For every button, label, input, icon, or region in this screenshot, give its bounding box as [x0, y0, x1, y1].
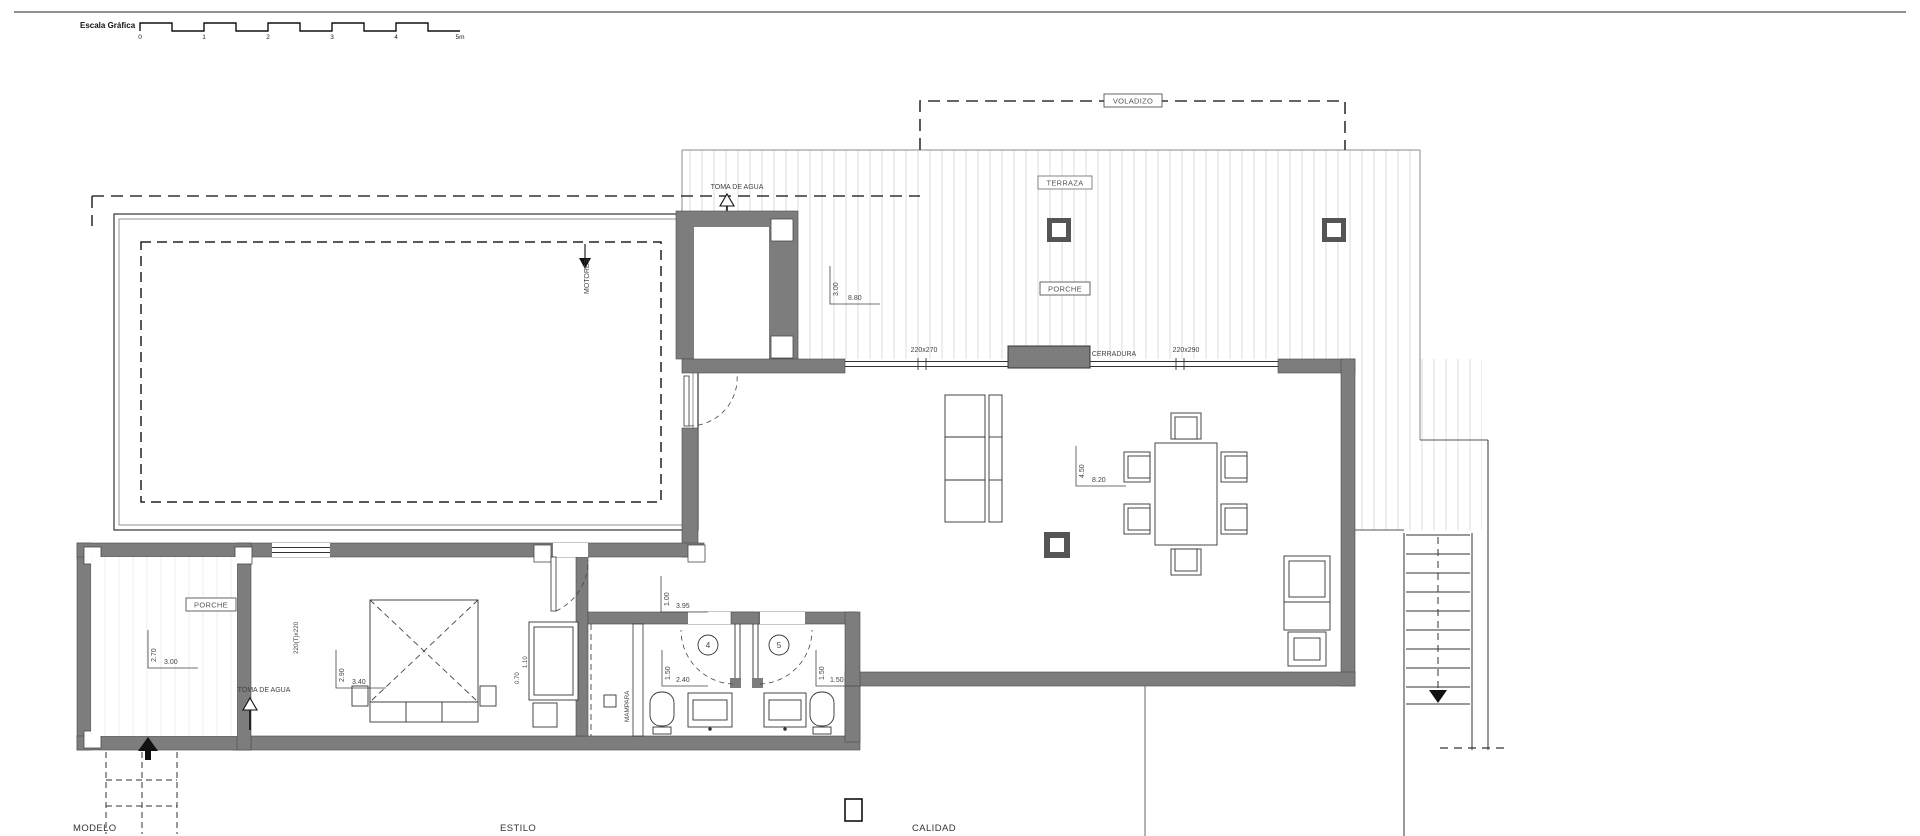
- toma-de-agua-porch-text: TOMA DE AGUA: [238, 687, 291, 694]
- scale-title: Escala Gráfica: [80, 21, 136, 30]
- dining-table: [1124, 413, 1247, 575]
- scale-tick-1: 1: [202, 34, 206, 41]
- voladizo-text: VOLADIZO: [1113, 97, 1153, 106]
- column: [771, 336, 793, 358]
- pool-room: [676, 211, 798, 359]
- scale-tick-4: 4: [394, 34, 398, 41]
- window-2-size: 220x290: [1173, 347, 1200, 354]
- hall-dim-width: 1.00: [664, 592, 671, 606]
- footer-calidad: CALIDAD: [912, 823, 956, 834]
- scale-steps: [140, 23, 460, 31]
- bath5-toilet: [810, 692, 834, 734]
- bedroom-dim-width: 2.90: [339, 668, 346, 682]
- voladizo-dashed-outline: [920, 101, 1345, 150]
- mampara-text: MAMPARA: [624, 690, 631, 722]
- footer-estilo: ESTILO: [500, 823, 536, 834]
- footer-modelo: MODELO: [73, 823, 117, 834]
- wardrobe: [529, 622, 578, 727]
- bath4-sink: [688, 693, 732, 730]
- wardrobe-height-label: 1.10: [523, 656, 529, 668]
- bath4-dim-length: 2.40: [676, 677, 690, 684]
- floor-plan-drawing: Escala Gráfica 0 1 2 3 4 5m VOLADIZO: [0, 0, 1920, 836]
- structural-column: [1044, 532, 1070, 558]
- bath5-number-text: 5: [777, 641, 782, 650]
- bath5-sink: [764, 693, 806, 730]
- porche-entrada-text: PORCHE: [194, 601, 228, 610]
- sliding-door-pocket: [1008, 346, 1090, 368]
- porche-terraza-label: PORCHE: [1040, 282, 1090, 295]
- bath5-room-number: 5: [769, 635, 789, 655]
- footer-row: MODELO ESTILO CALIDAD: [73, 799, 956, 834]
- porche-entrada-label: PORCHE: [186, 598, 236, 611]
- terraza-dim-width: 3.00: [833, 282, 840, 296]
- hall-dim-length: 3.95: [676, 603, 690, 610]
- porche-terraza-text: PORCHE: [1048, 285, 1082, 294]
- bath-pocket-doors: [730, 612, 763, 688]
- wardrobe-depth-label: 0.70: [515, 672, 521, 684]
- bedroom-dim-length: 3.40: [352, 679, 366, 686]
- cerradura-text: CERRADURA: [1092, 351, 1137, 358]
- porch-dim-length: 3.00: [164, 659, 178, 666]
- graphic-scale-bar: Escala Gráfica 0 1 2 3 4 5m: [80, 21, 465, 41]
- window-1-size: 220x270: [911, 347, 938, 354]
- scale-tick-3: 3: [330, 34, 334, 41]
- bedroom-window-size: 220(T)x220: [293, 621, 300, 654]
- scale-tick-2: 2: [266, 34, 270, 41]
- stair-direction: [1429, 537, 1505, 748]
- terraza-text: TERRAZA: [1046, 179, 1083, 188]
- bath4-toilet: [650, 692, 674, 734]
- porch-dim-width: 2.70: [151, 648, 158, 662]
- salon-dim-length: 8.20: [1092, 477, 1106, 484]
- bath4-room-number: 4: [698, 635, 718, 655]
- salon-dim-width: 4.50: [1079, 464, 1086, 478]
- terrace-column-left: [1047, 218, 1071, 242]
- salon-dimension: 4.50 8.20: [1076, 446, 1126, 486]
- voladizo-label: VOLADIZO: [1104, 94, 1162, 107]
- bath4-number-text: 4: [706, 641, 711, 650]
- motores-text: MOTORES: [584, 258, 591, 294]
- scale-tick-5: 5m: [455, 34, 464, 41]
- terraza-dim-length: 8.80: [848, 295, 862, 302]
- toma-de-agua-pool-text: TOMA DE AGUA: [711, 184, 764, 191]
- hall-dimension: 1.00 3.95: [661, 576, 708, 612]
- bath5-dim-width: 1.50: [819, 666, 826, 680]
- footer-legend-square: [845, 799, 862, 821]
- pool-deck: [114, 214, 698, 530]
- bath4-dimension: 1.50 2.40: [662, 650, 708, 686]
- bed: [352, 600, 496, 722]
- porch-decking: [91, 557, 237, 736]
- shower: MAMPARA: [591, 624, 643, 736]
- scale-tick-0: 0: [138, 34, 142, 41]
- exterior-steps: [106, 752, 177, 834]
- sofa: [945, 395, 1002, 522]
- column: [771, 219, 793, 241]
- terrace-column-right: [1322, 218, 1346, 242]
- floor-plan-sheet: Escala Gráfica 0 1 2 3 4 5m VOLADIZO: [0, 0, 1920, 836]
- kitchen-counter: [1284, 556, 1330, 666]
- bath5-dim-length: 1.50: [830, 677, 844, 684]
- terraza-label: TERRAZA: [1038, 176, 1092, 189]
- bath4-dim-width: 1.50: [665, 666, 672, 680]
